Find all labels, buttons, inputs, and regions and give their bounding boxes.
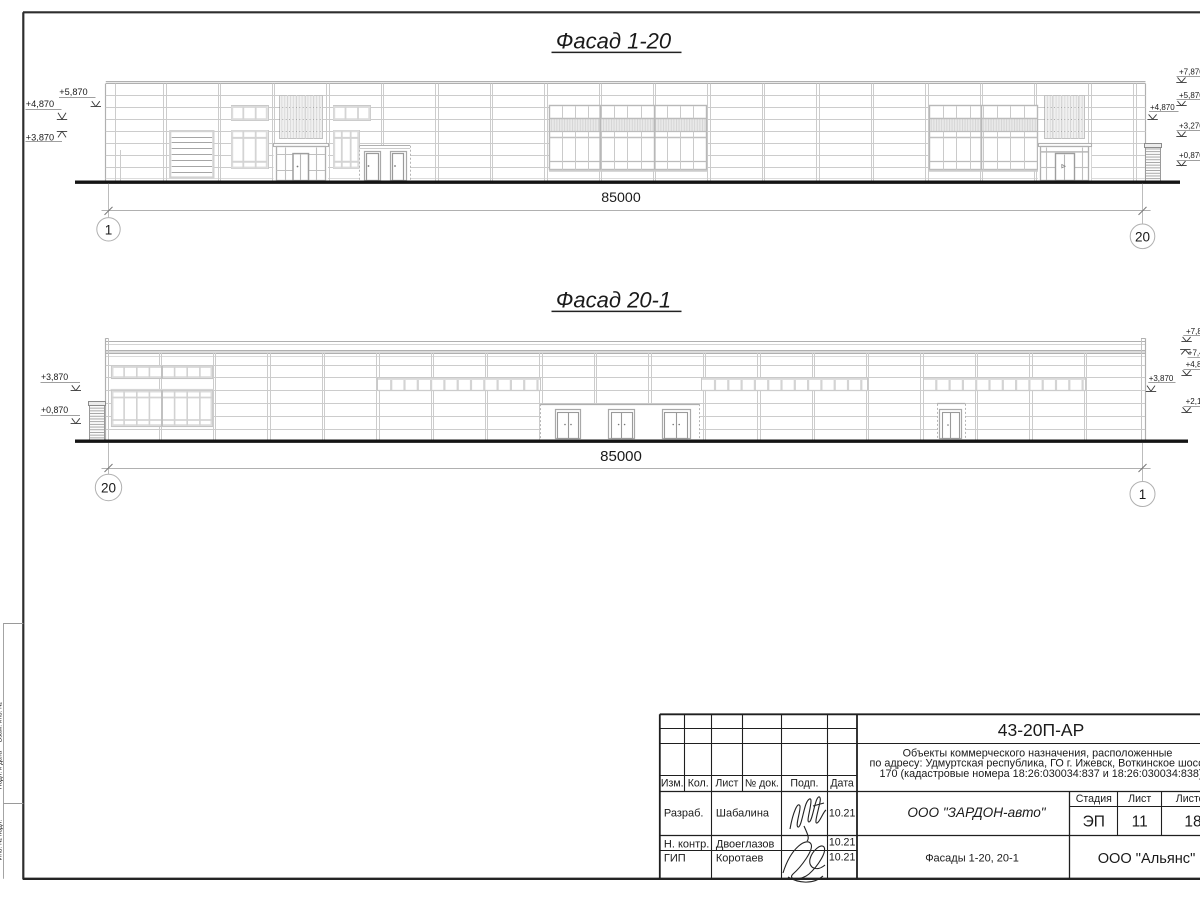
svg-text:+3,870: +3,870: [41, 372, 68, 382]
svg-text:+7,870: +7,870: [1179, 67, 1200, 76]
svg-text:Фасад 1-20: Фасад 1-20: [556, 28, 672, 53]
svg-text:Дата: Дата: [830, 778, 854, 790]
svg-text:18: 18: [1184, 814, 1200, 831]
svg-text:№ док.: № док.: [745, 778, 779, 790]
svg-text:43-20П-АР: 43-20П-АР: [998, 720, 1085, 740]
svg-text:170 (кадастровые номера 18:26:: 170 (кадастровые номера 18:26:030034:837…: [880, 768, 1200, 780]
svg-text:+5,870: +5,870: [59, 87, 87, 97]
svg-text:ООО "ЗАРДОН-авто": ООО "ЗАРДОН-авто": [907, 805, 1046, 820]
svg-text:1: 1: [105, 222, 113, 237]
svg-text:+7,470: +7,470: [1188, 349, 1200, 358]
svg-text:20: 20: [1135, 229, 1150, 244]
svg-text:Разраб.: Разраб.: [664, 808, 704, 820]
svg-text:85000: 85000: [600, 448, 642, 465]
svg-text:Подп. и дата: Подп. и дата: [0, 750, 4, 789]
svg-text:Лист: Лист: [1128, 793, 1151, 805]
svg-text:ООО "Альянс": ООО "Альянс": [1098, 851, 1196, 867]
svg-text:+3,870: +3,870: [1149, 374, 1174, 383]
svg-text:10.21: 10.21: [829, 852, 856, 864]
svg-text:Листов: Листов: [1176, 793, 1200, 805]
svg-text:+4,870: +4,870: [1186, 360, 1200, 369]
svg-text:Инв. № подл.: Инв. № подл.: [0, 820, 4, 861]
svg-text:Кол.: Кол.: [688, 778, 709, 790]
svg-text:+3,270: +3,270: [1179, 122, 1200, 131]
svg-text:+2,170: +2,170: [1186, 397, 1200, 406]
svg-text:Коротаев: Коротаев: [716, 853, 764, 865]
svg-text:Взам. инв. №: Взам. инв. №: [0, 702, 4, 742]
svg-text:Двоеглазов: Двоеглазов: [716, 839, 775, 851]
svg-text:+4,870: +4,870: [1150, 103, 1175, 112]
svg-text:1: 1: [1139, 487, 1147, 502]
svg-text:ЭП: ЭП: [1083, 814, 1105, 831]
svg-text:10.21: 10.21: [829, 837, 856, 849]
svg-text:Н. контр.: Н. контр.: [664, 839, 709, 851]
svg-text:+3,870: +3,870: [26, 132, 54, 142]
svg-text:+4,870: +4,870: [26, 99, 54, 109]
svg-text:10.21: 10.21: [829, 808, 856, 820]
svg-text:ГИП: ГИП: [664, 853, 686, 865]
svg-text:Шабалина: Шабалина: [716, 808, 770, 820]
svg-text:Изм.: Изм.: [661, 778, 684, 790]
svg-text:85000: 85000: [601, 190, 641, 206]
svg-text:+7,870: +7,870: [1186, 327, 1200, 336]
svg-text:Стадия: Стадия: [1076, 793, 1112, 805]
svg-text:Фасады 1-20, 20-1: Фасады 1-20, 20-1: [925, 853, 1019, 865]
svg-text:+0,870: +0,870: [1179, 151, 1200, 160]
svg-text:11: 11: [1132, 814, 1148, 831]
svg-text:+0,870: +0,870: [41, 405, 68, 415]
svg-text:Подп.: Подп.: [790, 778, 818, 790]
svg-text:Лист: Лист: [715, 778, 738, 790]
svg-text:Фасад 20-1: Фасад 20-1: [556, 288, 671, 313]
svg-text:+5,870: +5,870: [1179, 91, 1200, 100]
svg-text:20: 20: [101, 481, 116, 496]
